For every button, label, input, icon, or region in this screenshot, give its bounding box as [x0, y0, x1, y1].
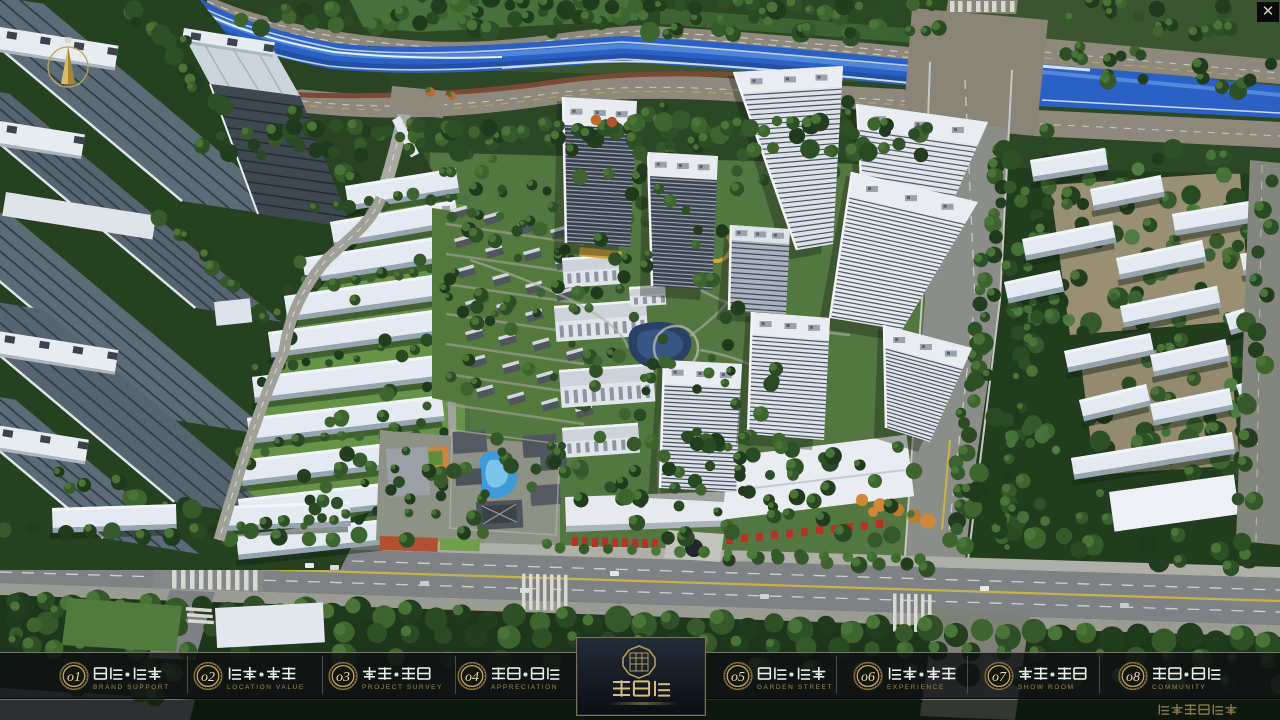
svg-text:o6: o6	[861, 670, 875, 685]
svg-text:o3: o3	[336, 670, 350, 685]
svg-text:o5: o5	[731, 670, 745, 685]
svg-text:o2: o2	[201, 670, 215, 685]
svg-text:o1: o1	[67, 670, 81, 685]
svg-text:o7: o7	[992, 670, 1007, 685]
svg-text:o8: o8	[1126, 670, 1140, 685]
svg-text:o4: o4	[465, 670, 479, 685]
